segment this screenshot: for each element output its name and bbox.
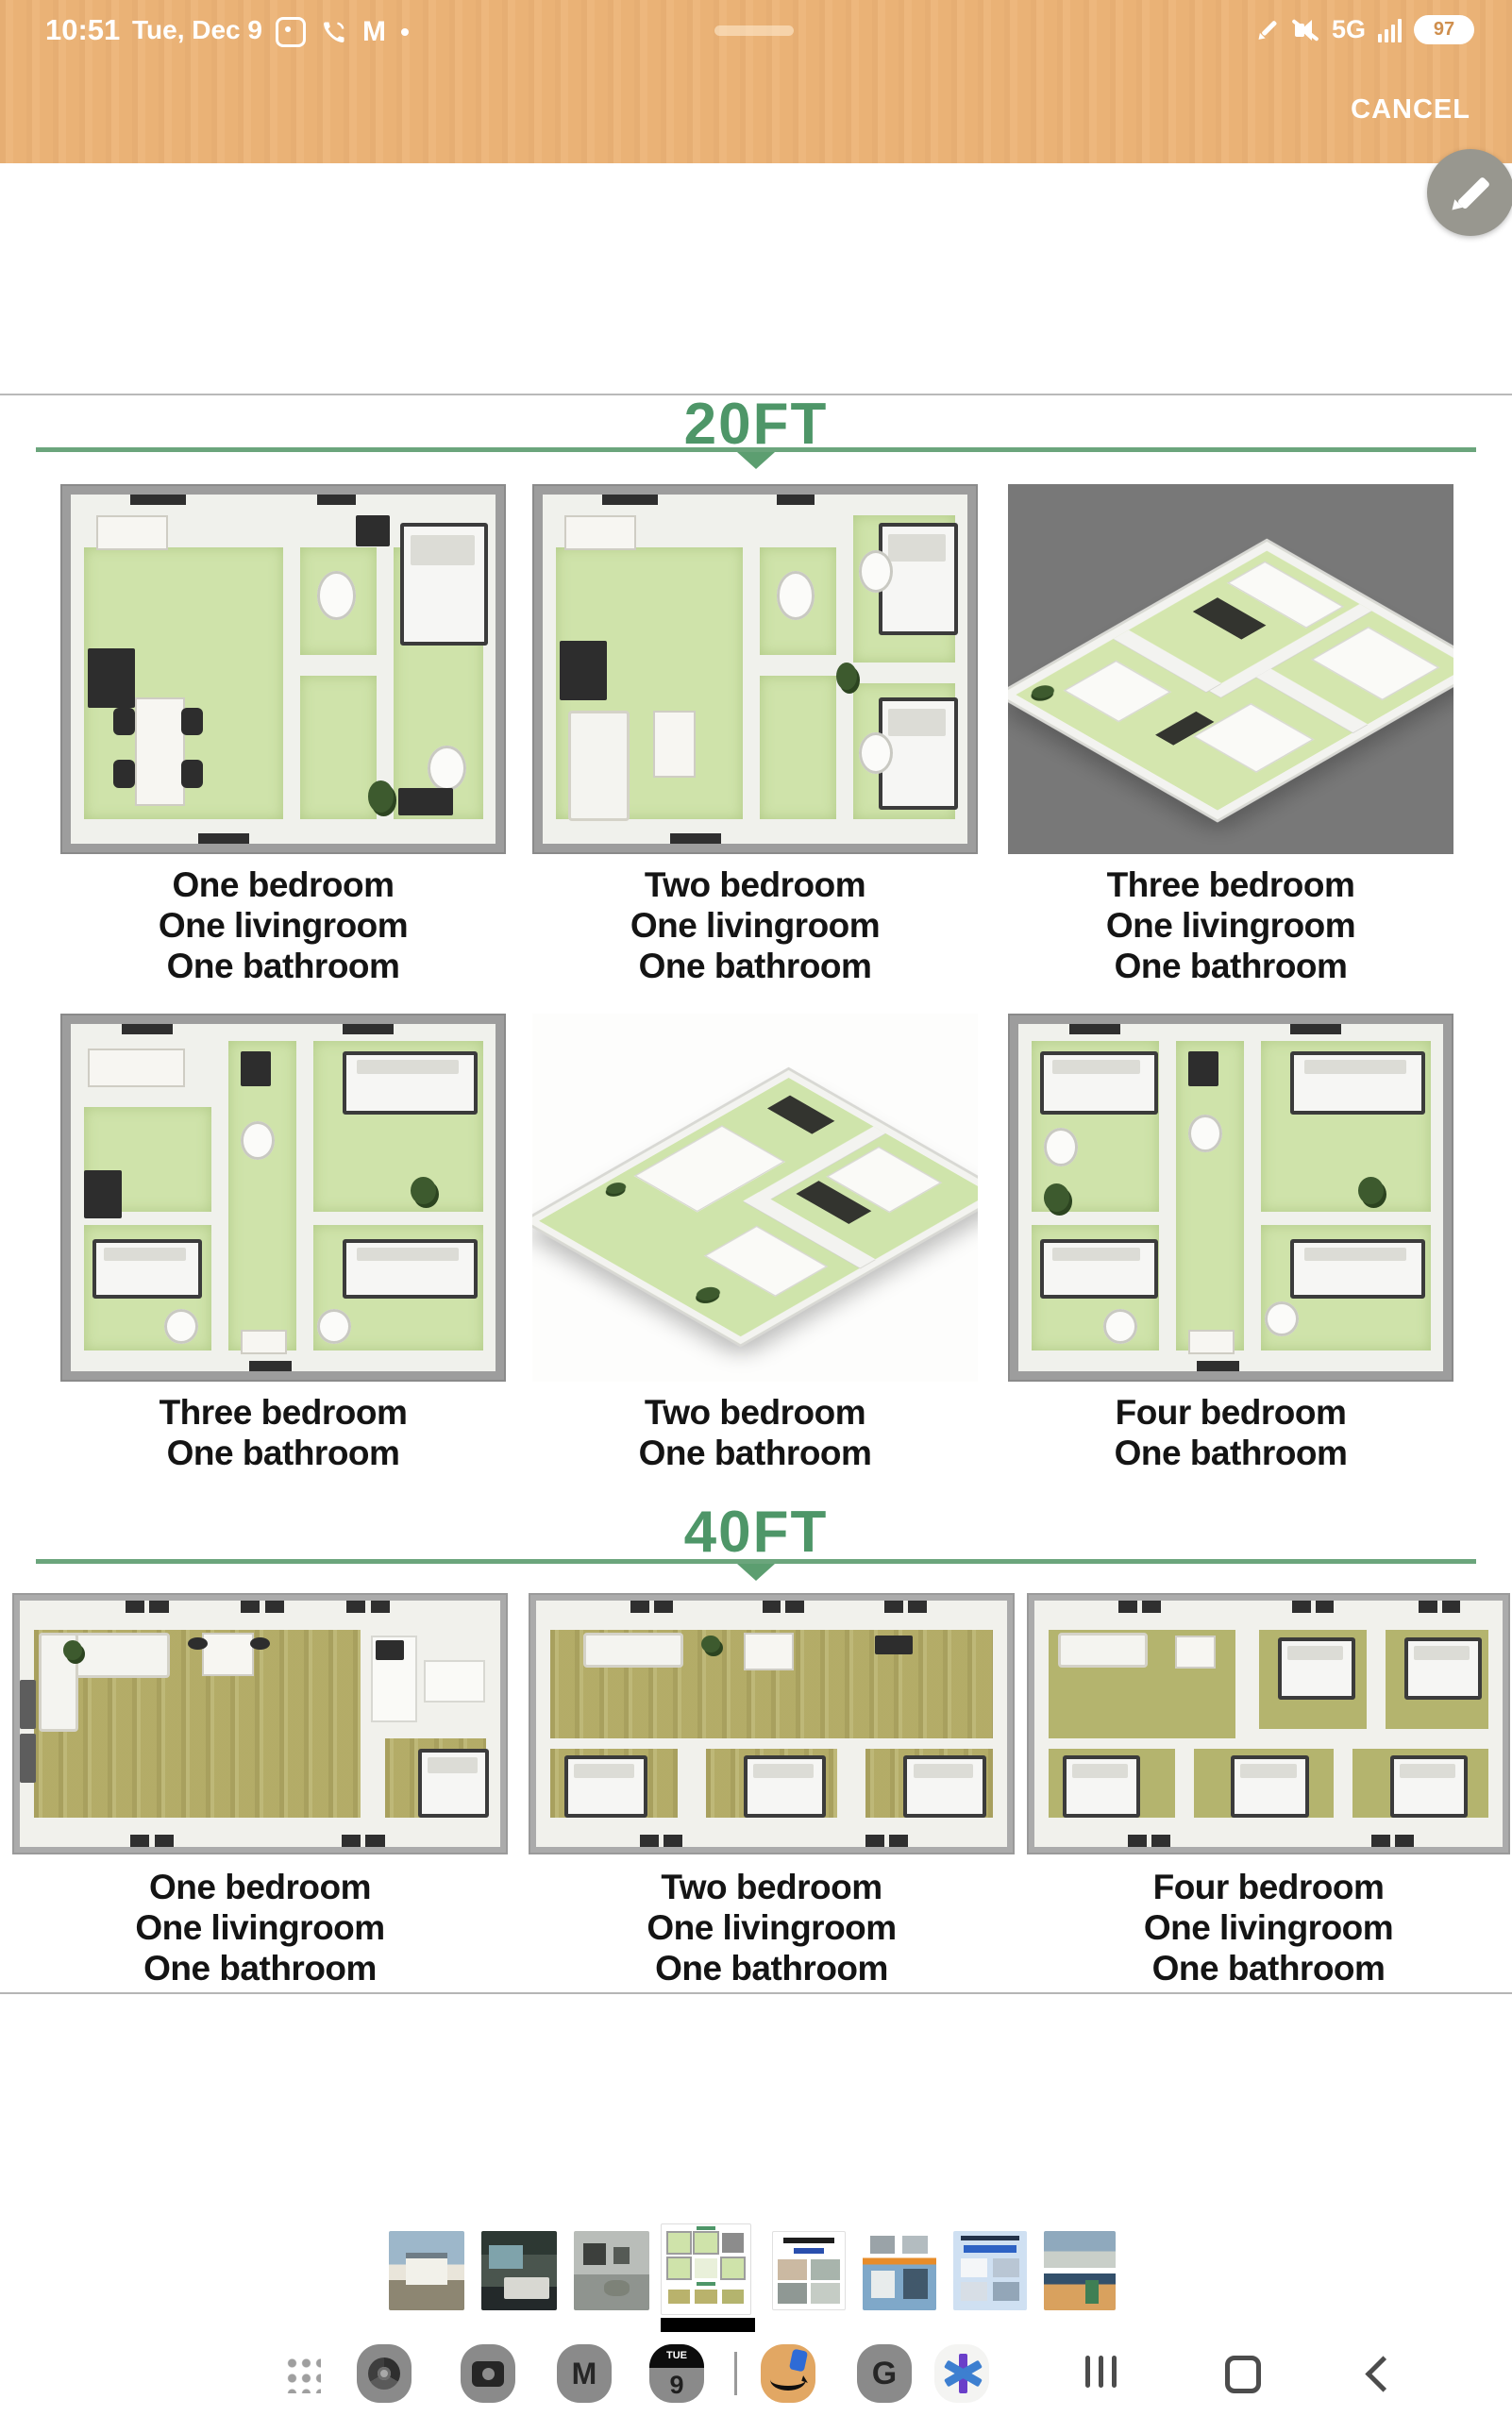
pencil-icon <box>1457 176 1490 210</box>
apps-grid-icon[interactable] <box>283 2354 321 2393</box>
caption-20ft-5: Two bedroom One bathroom <box>532 1392 978 1473</box>
screenshot-icon <box>276 17 306 47</box>
caption-20ft-2: Two bedroom One livingroom One bathroom <box>532 864 978 986</box>
thumbnail-container-exteriors[interactable] <box>1044 2231 1116 2310</box>
dock-divider <box>734 2352 737 2395</box>
caption-20ft-4: Three bedroom One bathroom <box>60 1392 506 1473</box>
status-right-icons: 5G 97 <box>1254 15 1474 44</box>
plan-20ft-three-bedroom <box>1008 484 1453 854</box>
google-app-icon[interactable]: G <box>857 2344 912 2403</box>
clock: 10:51 <box>45 13 120 47</box>
caption-20ft-1: One bedroom One livingroom One bathroom <box>60 864 506 986</box>
section-title-40ft: 40FT <box>0 1499 1512 1566</box>
calendar-day: 9 <box>649 2368 704 2403</box>
gmail-icon: M <box>362 20 386 44</box>
date: Tue, Dec 9 <box>132 15 262 45</box>
caption-40ft-2: Two bedroom One livingroom One bathroom <box>529 1867 1015 1988</box>
plan-40ft-two-bedroom <box>529 1593 1015 1854</box>
notification-icons: M <box>276 17 409 47</box>
caption-40ft-3: Four bedroom One livingroom One bathroom <box>1027 1867 1510 1988</box>
edit-fab-button[interactable] <box>1427 149 1512 236</box>
camera-app-icon[interactable] <box>461 2344 515 2403</box>
thumbnail-bedroom-interior[interactable] <box>481 2231 557 2310</box>
calendar-app-icon[interactable]: TUE 9 <box>649 2344 704 2403</box>
stylus-icon <box>1250 12 1285 47</box>
thumbnail-installation-steps[interactable] <box>863 2231 936 2310</box>
battery-indicator: 97 <box>1414 15 1474 44</box>
thumbnail-internal-display[interactable] <box>772 2231 846 2310</box>
plan-40ft-four-bedroom <box>1027 1593 1510 1854</box>
mute-icon <box>1291 16 1319 44</box>
nav-recents-button[interactable] <box>1085 2356 1117 2388</box>
plan-20ft-one-bedroom <box>60 484 506 854</box>
caption-20ft-6: Four bedroom One bathroom <box>1008 1392 1453 1473</box>
asterisk-app-icon[interactable] <box>934 2344 989 2403</box>
amazon-app-icon[interactable] <box>761 2344 815 2403</box>
thumbnail-livingroom-interior[interactable] <box>574 2231 649 2310</box>
thumbnail-product-advantages[interactable] <box>953 2231 1027 2310</box>
thumbnail-house-exterior[interactable] <box>389 2231 464 2310</box>
gmail-app-icon[interactable]: M <box>557 2344 612 2403</box>
plan-20ft-four-bedroom-one-bath <box>1008 1014 1453 1382</box>
nav-home-button[interactable] <box>1225 2356 1261 2393</box>
camera-cutout <box>714 25 794 36</box>
plan-40ft-one-bedroom <box>12 1593 508 1854</box>
chrome-app-icon[interactable] <box>357 2344 412 2403</box>
plan-20ft-two-bedroom <box>532 484 978 854</box>
plan-20ft-three-bedroom-one-bath <box>60 1014 506 1382</box>
caption-40ft-1: One bedroom One livingroom One bathroom <box>12 1867 508 1988</box>
status-action-bar: 10:51 Tue, Dec 9 M 5G 97 CANCEL <box>0 0 1512 163</box>
notification-dot <box>401 28 409 36</box>
plan-20ft-two-bedroom-one-bath <box>532 1014 978 1382</box>
network-type: 5G <box>1332 15 1366 44</box>
caption-20ft-3: Three bedroom One livingroom One bathroo… <box>1008 864 1453 986</box>
divider-arrow-40ft <box>737 1564 775 1581</box>
signal-bars-icon <box>1378 18 1402 42</box>
phone-icon <box>321 19 347 45</box>
selected-thumbnail-indicator <box>661 2318 755 2332</box>
divider-arrow-20ft <box>737 452 775 469</box>
cancel-button[interactable]: CANCEL <box>1351 94 1470 126</box>
thumbnail-floor-plans-selected[interactable] <box>661 2223 751 2315</box>
nav-back-button[interactable] <box>1370 2361 1396 2387</box>
calendar-weekday: TUE <box>649 2344 704 2368</box>
